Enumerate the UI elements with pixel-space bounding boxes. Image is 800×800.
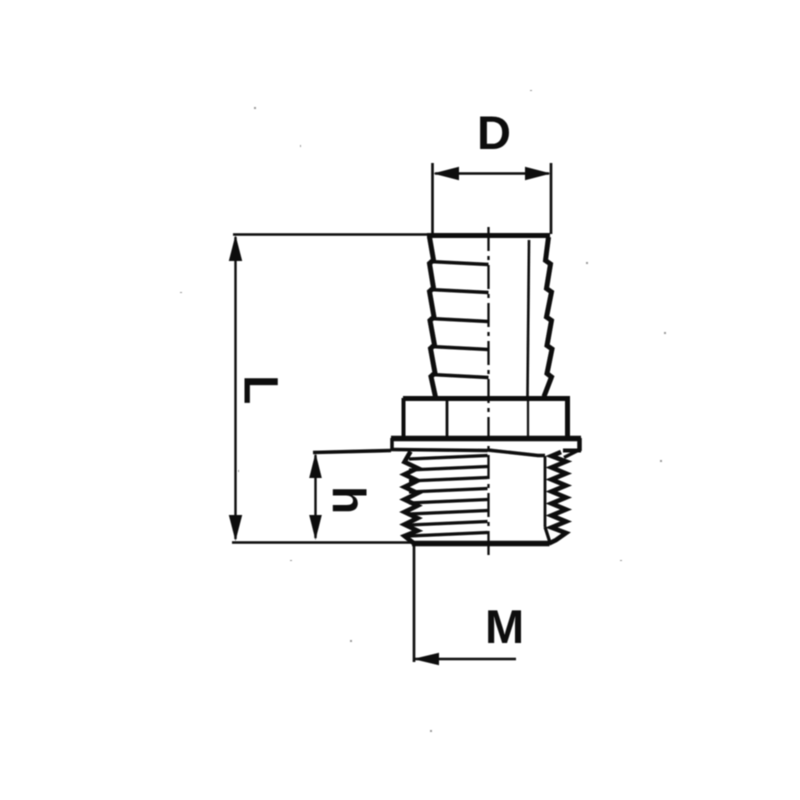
svg-text:L: L (234, 375, 287, 404)
svg-text:h: h (323, 486, 375, 514)
svg-text:D: D (477, 106, 511, 159)
svg-text:M: M (485, 600, 524, 653)
